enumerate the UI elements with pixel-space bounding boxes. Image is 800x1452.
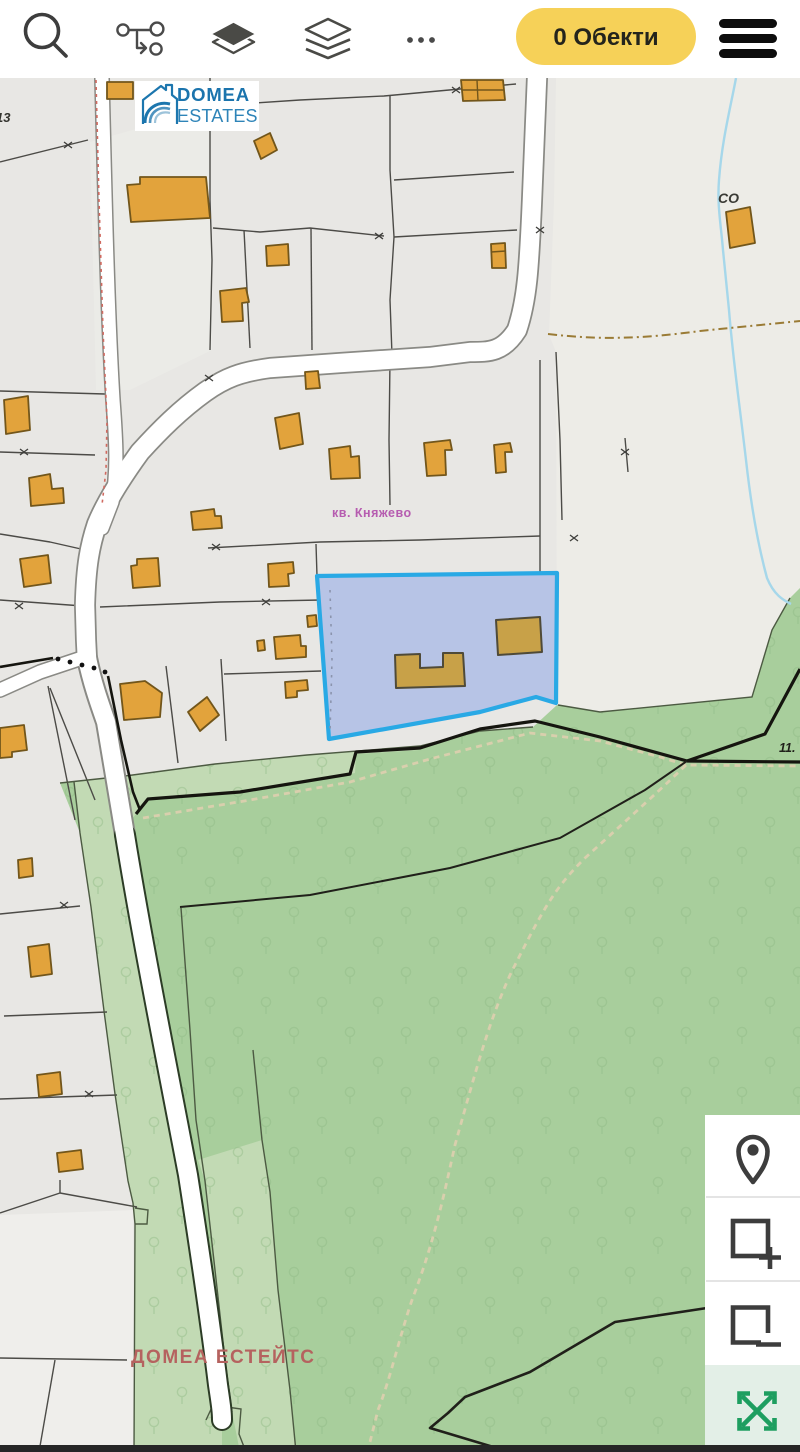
svg-text:ESTATES: ESTATES <box>177 106 258 126</box>
svg-text:ДОМЕА ЕСТЕЙТС: ДОМЕА ЕСТЕЙТС <box>131 1346 316 1368</box>
svg-text:DOMEA: DOMEA <box>177 84 250 105</box>
svg-text:СО: СО <box>718 190 739 206</box>
svg-text:кв. Княжево: кв. Княжево <box>332 506 412 520</box>
svg-text:0 Обекти: 0 Обекти <box>553 24 658 51</box>
svg-text:13: 13 <box>0 110 11 125</box>
svg-text:11.: 11. <box>779 741 795 755</box>
